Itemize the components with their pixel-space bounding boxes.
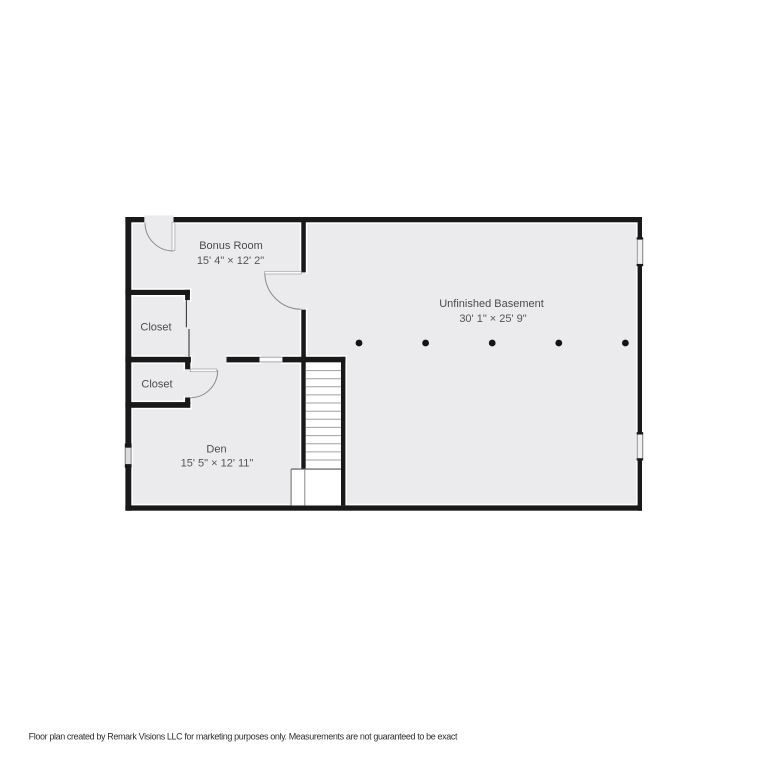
svg-text:30' 1" × 25' 9": 30' 1" × 25' 9" [459, 313, 526, 325]
svg-text:Den: Den [206, 443, 226, 455]
svg-text:Unfinished Basement: Unfinished Basement [439, 298, 544, 310]
svg-text:Closet: Closet [140, 322, 171, 334]
svg-text:Closet: Closet [141, 379, 172, 391]
svg-text:15' 5" × 12' 11": 15' 5" × 12' 11" [181, 458, 254, 470]
svg-text:15' 4" × 12' 2": 15' 4" × 12' 2" [197, 255, 264, 267]
svg-text:Floor plan created by Remark V: Floor plan created by Remark Visions LLC… [29, 732, 458, 742]
svg-text:Bonus Room: Bonus Room [199, 240, 263, 252]
